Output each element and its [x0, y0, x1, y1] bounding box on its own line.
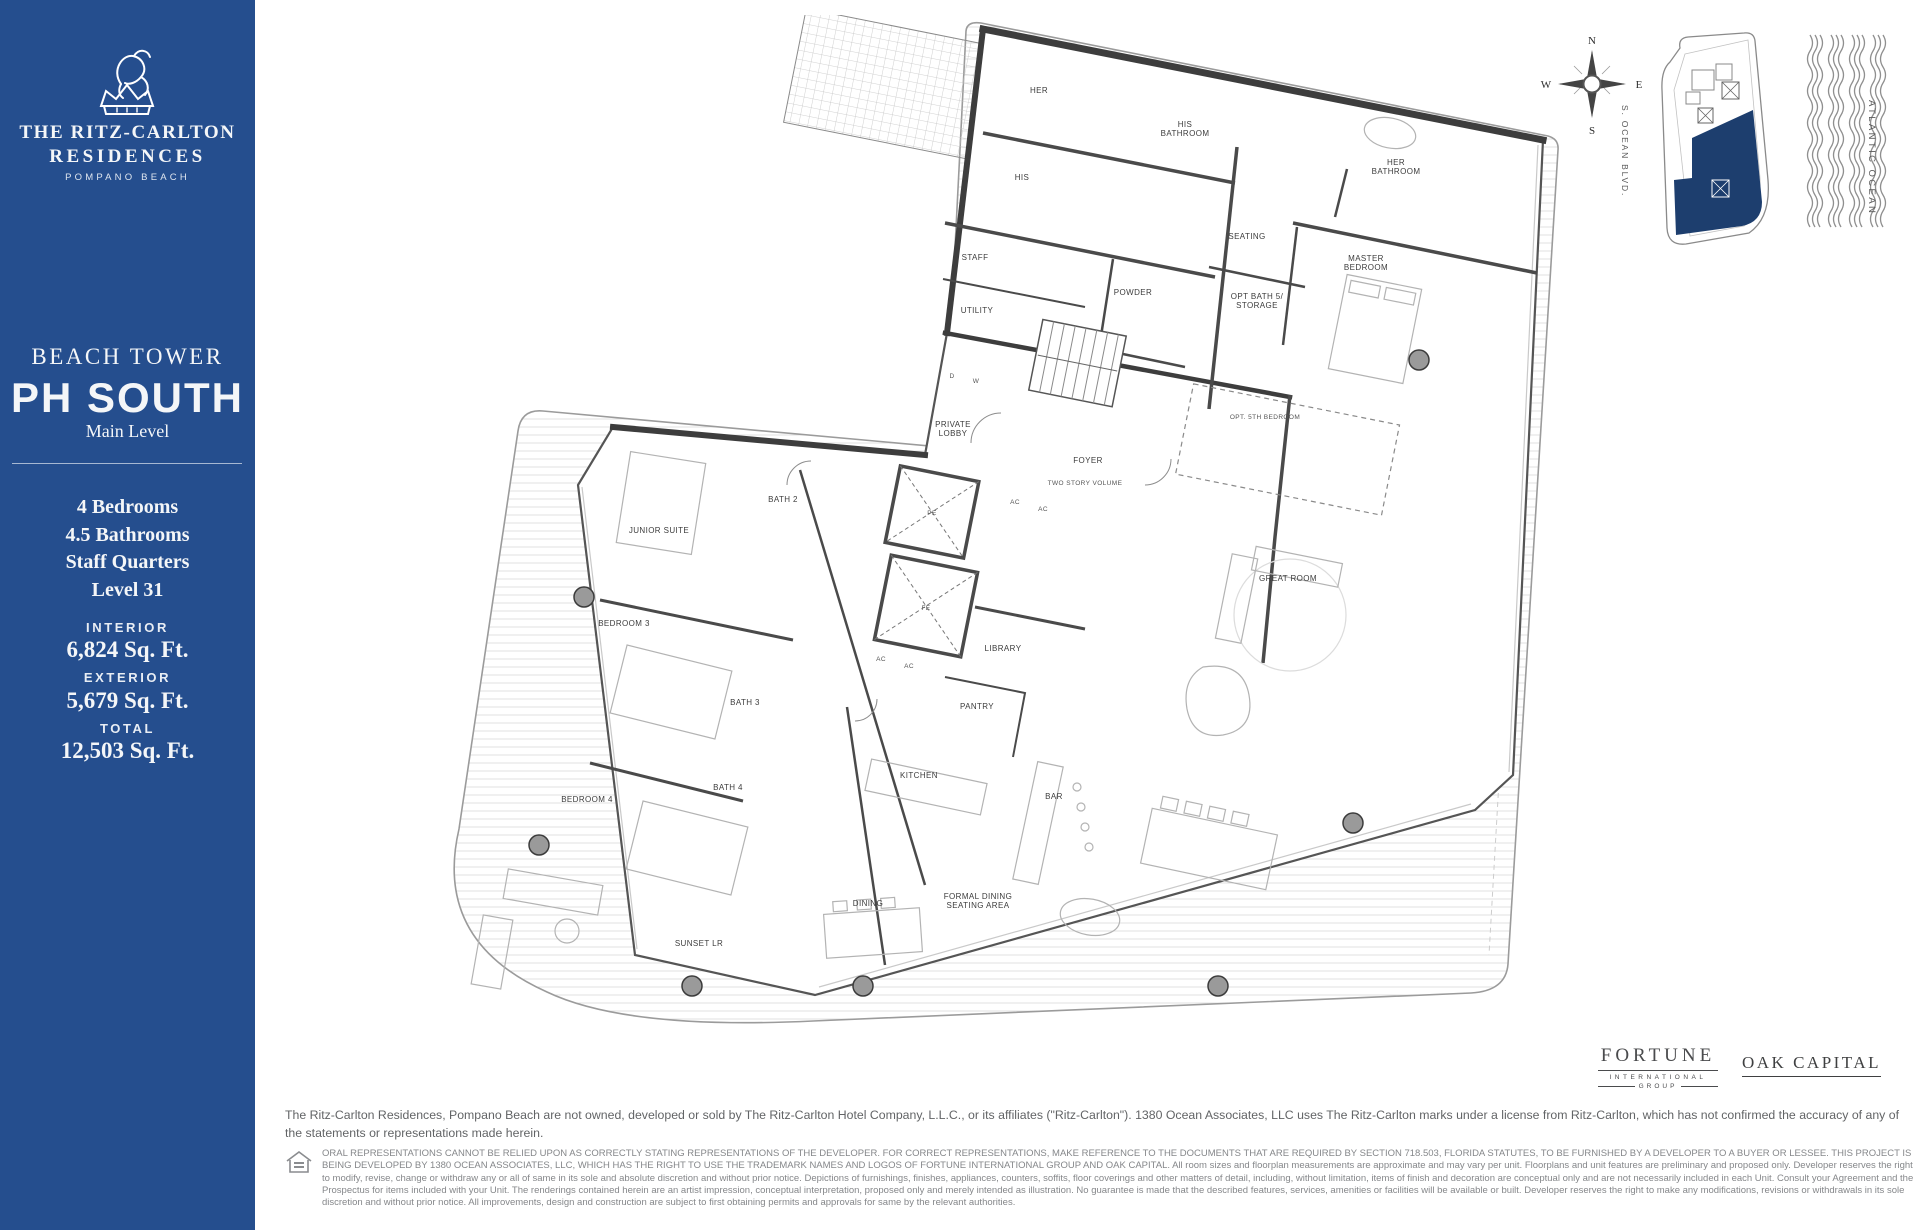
room-label-dining: DINING [853, 899, 883, 908]
compass-rose: N E S W [1540, 30, 1650, 148]
room-label-staff: STAFF [962, 253, 989, 262]
structural-column [1409, 350, 1429, 370]
equal-housing-opportunity-icon [285, 1150, 313, 1176]
spec-bedrooms: 4 Bedrooms [0, 496, 255, 519]
room-label-her: HER [1030, 86, 1048, 95]
sidebar: THE RITZ-CARLTON RESIDENCES POMPANO BEAC… [0, 0, 255, 1230]
structural-column [529, 835, 549, 855]
room-label-master-bedroom: MASTERBEDROOM [1344, 254, 1388, 272]
street-label: S. OCEAN BLVD. [1620, 105, 1630, 197]
unit-name: PH SOUTH [0, 374, 255, 422]
room-label-fe: FE [921, 605, 930, 612]
room-label-his: HIS [1015, 173, 1030, 182]
room-label-two-story-volume: TWO STORY VOLUME [1048, 480, 1123, 487]
floor-plan-drawing: HERHISHISBATHROOMHERBATHROOMSEATINGMASTE… [385, 15, 1560, 1030]
total-value: 12,503 Sq. Ft. [0, 738, 255, 764]
fortune-logo-line3: GROUP [1598, 1083, 1718, 1090]
room-label-opt-5th-bedroom: OPT. 5TH BEDROOM [1230, 414, 1300, 421]
room-label-powder: POWDER [1114, 288, 1152, 297]
room-label-bedroom-4: BEDROOM 4 [561, 795, 613, 804]
site-key-elevator-2 [1698, 108, 1713, 123]
brochure-page: THE RITZ-CARLTON RESIDENCES POMPANO BEAC… [0, 0, 1920, 1230]
room-label-w: W [973, 378, 980, 385]
room-label-bar: BAR [1045, 792, 1063, 801]
room-label-d: D [949, 373, 954, 380]
structural-column [1343, 813, 1363, 833]
room-label-kitchen: KITCHEN [900, 771, 938, 780]
compass-n: N [1588, 35, 1596, 47]
spec-bathrooms: 4.5 Bathrooms [0, 524, 255, 547]
legal-fine-print: ORAL REPRESENTATIONS CANNOT BE RELIED UP… [322, 1148, 1918, 1214]
room-label-great-room: GREAT ROOM [1259, 574, 1317, 583]
room-label-foyer: FOYER [1073, 456, 1103, 465]
interior-value: 6,824 Sq. Ft. [0, 637, 255, 663]
ocean-label: ATLANTIC OCEAN [1866, 100, 1877, 215]
room-label-ac: AC [1010, 499, 1020, 506]
brand-location: POMPANO BEACH [0, 172, 255, 183]
room-label-formal-dining-seating-area: FORMAL DININGSEATING AREA [944, 892, 1012, 910]
room-label-pantry: PANTRY [960, 702, 994, 711]
room-label-pe: PE [927, 510, 937, 517]
spec-level: Level 31 [0, 579, 255, 602]
brand-name-line1: THE RITZ-CARLTON [0, 122, 255, 144]
room-label-ac: AC [904, 663, 914, 670]
room-label-private-lobby: PRIVATELOBBY [935, 420, 971, 438]
site-key-elevator-1 [1722, 82, 1739, 99]
room-label-ac: AC [876, 656, 886, 663]
brand-name-line2: RESIDENCES [0, 146, 255, 168]
staircase [1029, 319, 1126, 406]
room-label-junior-suite: JUNIOR SUITE [629, 526, 689, 535]
room-label-opt-bath-5-storage: OPT BATH 5/STORAGE [1231, 292, 1284, 310]
total-label: TOTAL [0, 721, 255, 736]
room-label-bath-4: BATH 4 [713, 783, 743, 792]
exterior-value: 5,679 Sq. Ft. [0, 688, 255, 714]
room-label-bedroom-3: BEDROOM 3 [598, 619, 650, 628]
site-key-plan [1652, 30, 1802, 250]
compass-e: E [1636, 79, 1643, 91]
room-label-ac: AC [1038, 506, 1048, 513]
fortune-logo-line2: INTERNATIONAL [1598, 1070, 1718, 1081]
spec-staff-quarters: Staff Quarters [0, 551, 255, 574]
ocean-waves [1806, 32, 1890, 244]
compass-s: S [1589, 125, 1595, 137]
ritz-disclaimer-text: The Ritz-Carlton Residences, Pompano Bea… [285, 1106, 1918, 1143]
structural-column [574, 587, 594, 607]
ritz-carlton-lion-crown-logo [87, 42, 167, 120]
tower-name: BEACH TOWER [0, 344, 255, 370]
room-label-utility: UTILITY [961, 306, 994, 315]
sidebar-divider [12, 463, 242, 464]
room-label-seating: SEATING [1228, 232, 1265, 241]
room-label-bath-2: BATH 2 [768, 495, 798, 504]
level-name: Main Level [0, 421, 255, 442]
room-label-library: LIBRARY [985, 644, 1022, 653]
fortune-logo-line1: FORTUNE [1598, 1045, 1718, 1067]
room-label-bath-3: BATH 3 [730, 698, 760, 707]
structural-column [1208, 976, 1228, 996]
oak-capital-logo: OAK CAPITAL [1742, 1053, 1881, 1077]
interior-label: INTERIOR [0, 620, 255, 635]
fortune-international-group-logo: FORTUNE INTERNATIONAL GROUP [1598, 1045, 1718, 1090]
exterior-label: EXTERIOR [0, 670, 255, 685]
room-label-sunset-lr: SUNSET LR [675, 939, 723, 948]
structural-column [853, 976, 873, 996]
compass-w: W [1541, 79, 1552, 91]
structural-column [682, 976, 702, 996]
